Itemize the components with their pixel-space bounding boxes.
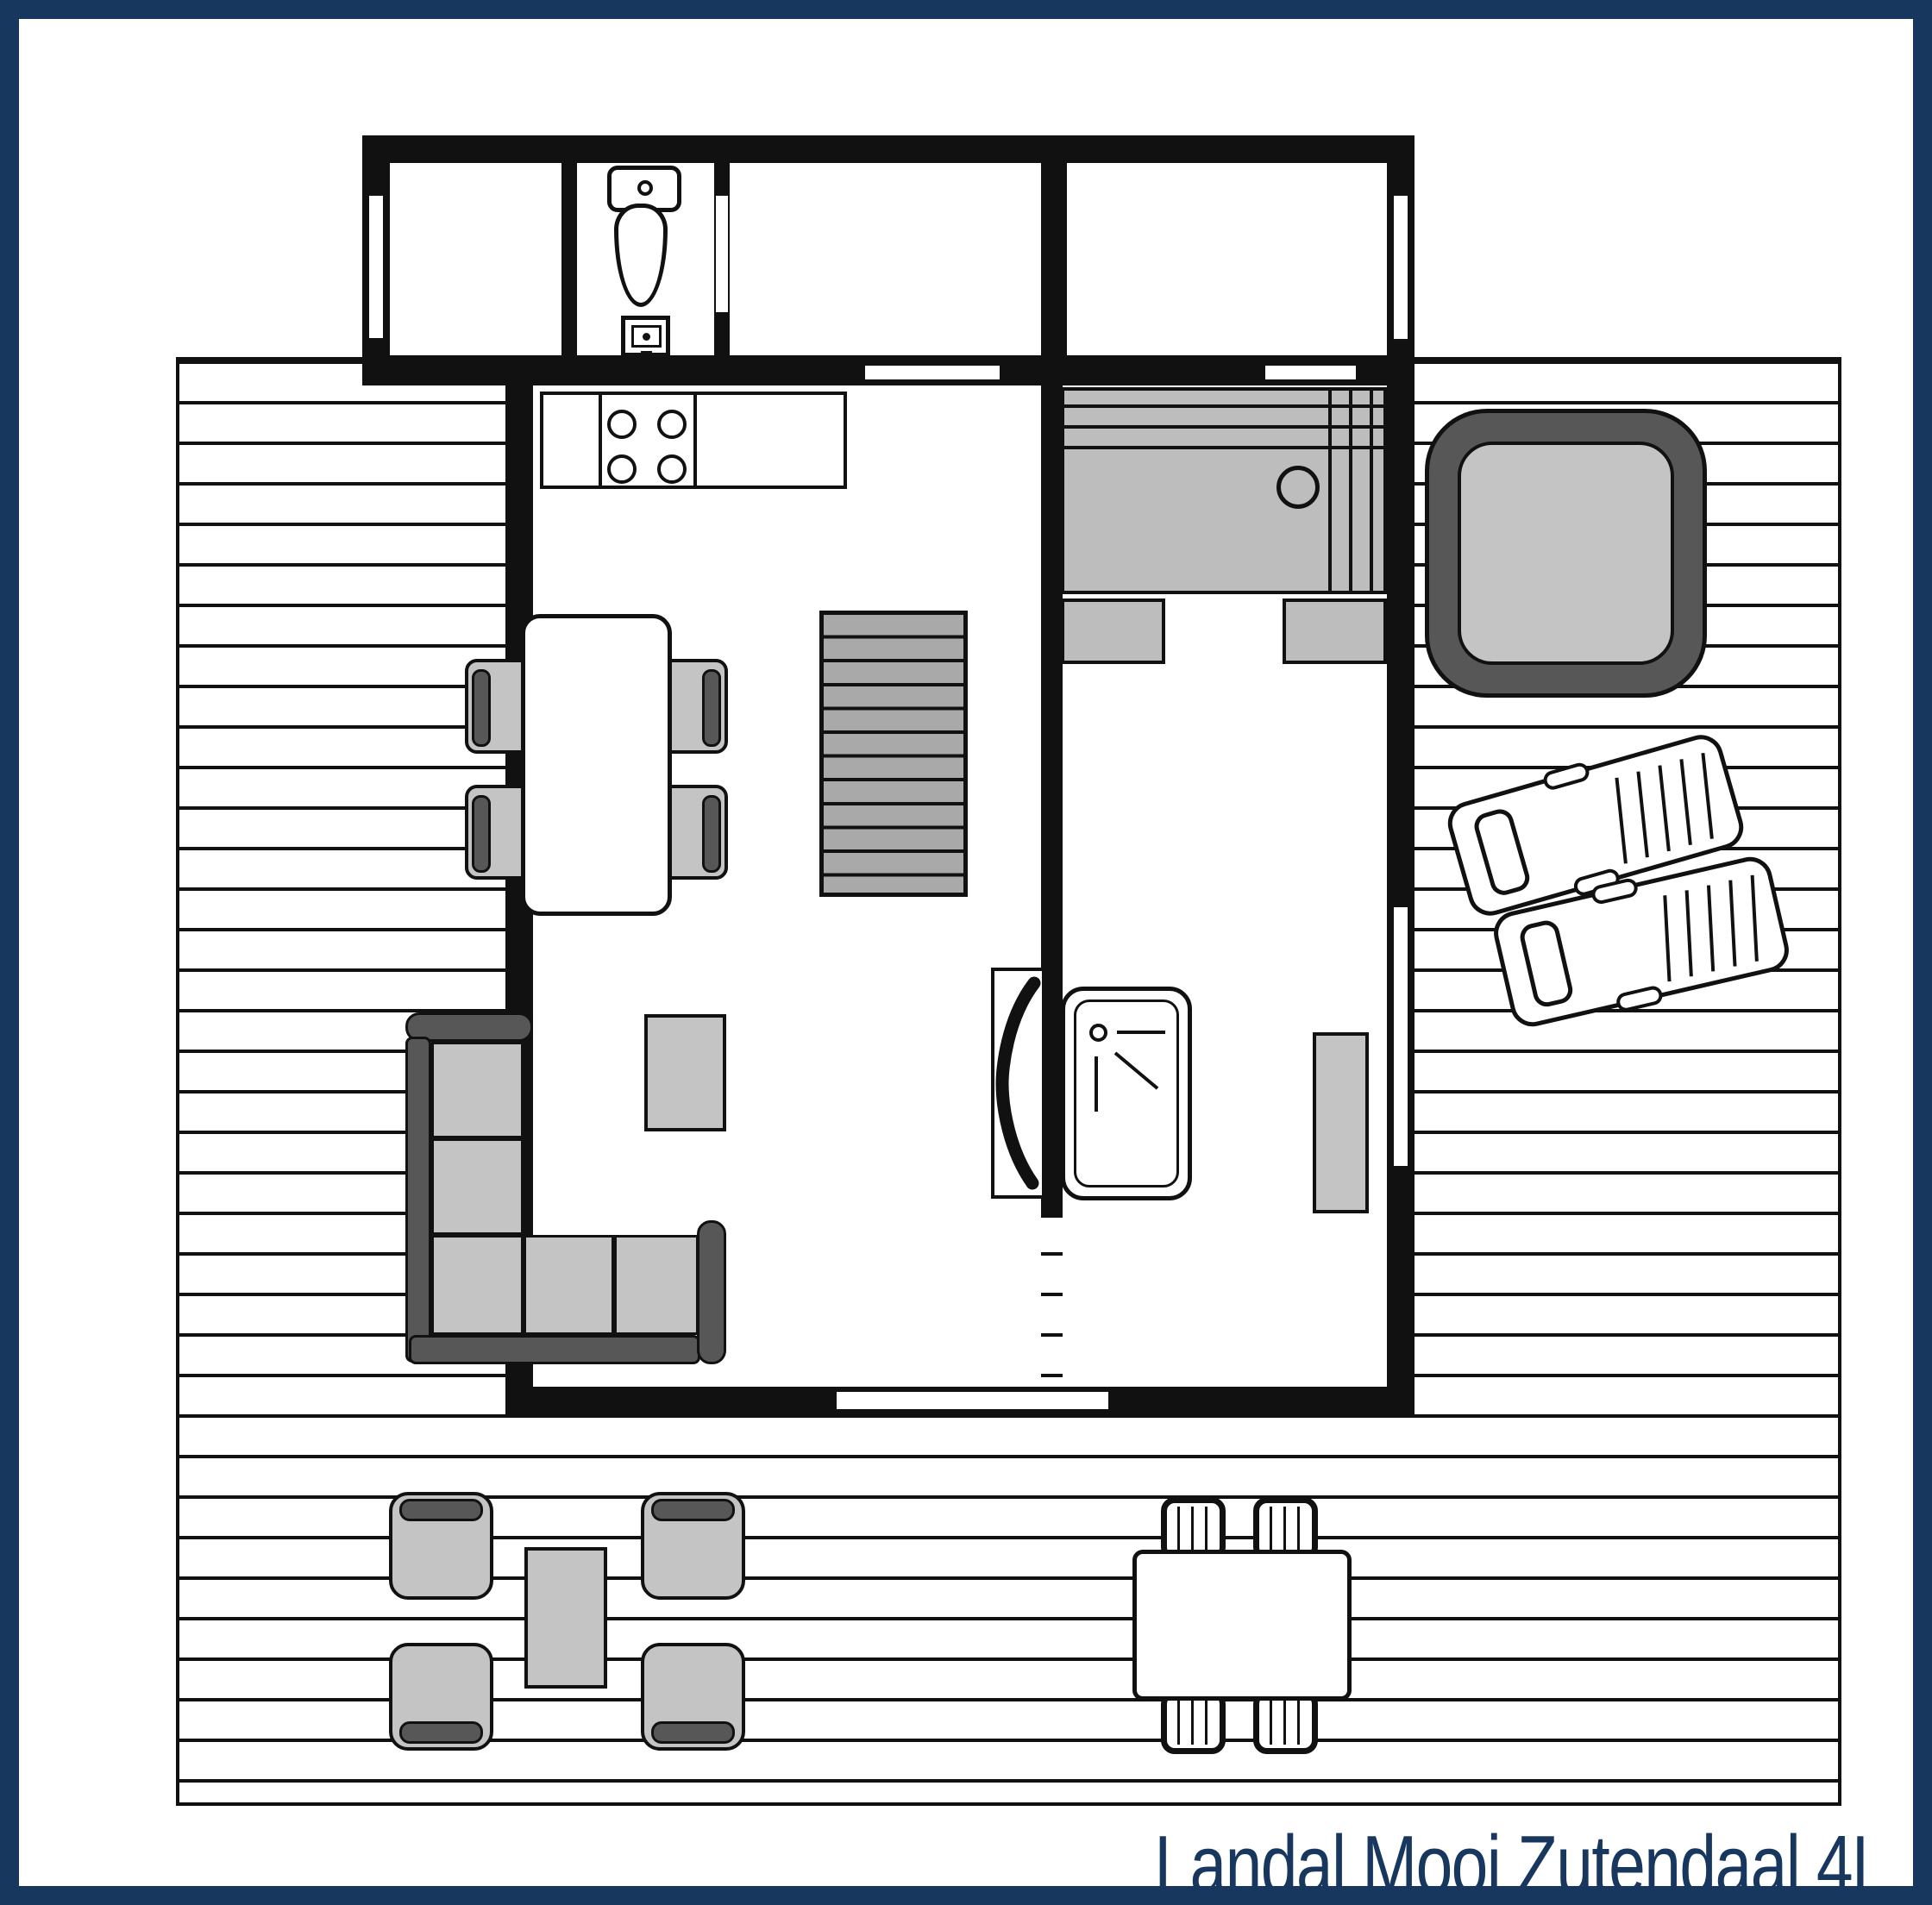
hot-tub (1425, 409, 1707, 698)
dining-table (521, 614, 672, 916)
sofa-armrest-right (697, 1220, 726, 1364)
chair-slat (1177, 1700, 1180, 1745)
shower-hose-icon (1095, 1056, 1098, 1112)
chair-slat (1205, 1700, 1207, 1745)
hot-tub-water (1458, 442, 1674, 665)
basin-drain-icon (643, 333, 650, 341)
wash-basin (621, 316, 670, 357)
chair-slat (1205, 1507, 1207, 1551)
lounger-slat (1615, 778, 1627, 864)
outdoor-chair (389, 1643, 493, 1751)
lounger-headrest (1517, 918, 1575, 1010)
bedroom-middle (730, 163, 1041, 355)
chair-backrest (472, 669, 491, 747)
bedroom-left (390, 163, 561, 355)
basin-tap-icon (641, 351, 652, 361)
sofa-cushion (614, 1235, 699, 1335)
sliding-door-bottom (837, 1392, 1108, 1409)
toilet-flush-button-icon (637, 180, 653, 196)
counter-divider (693, 395, 697, 486)
chair-slat (1297, 1507, 1300, 1551)
chair-backrest (702, 669, 721, 747)
sauna-bench-slat (1064, 425, 1383, 429)
chair-slat (1283, 1507, 1286, 1551)
window-left-wall (369, 196, 383, 338)
chair-backrest (702, 795, 721, 873)
window-right-top (1394, 196, 1408, 339)
counter-divider (599, 395, 602, 486)
chair-slat (1191, 1507, 1194, 1551)
outdoor-chair (641, 1492, 745, 1600)
sofa-cushion-corner (431, 1235, 524, 1335)
chair-backrest (472, 795, 491, 873)
sauna-heater-icon (1276, 466, 1320, 509)
door-swing-arc-icon (991, 968, 1045, 1199)
stove-burner-icon (657, 454, 687, 484)
lounger-slat (1658, 765, 1670, 851)
sauna-bench-slat (1064, 446, 1383, 449)
sauna-step-bench-left (1061, 598, 1165, 664)
sauna-bench-slat-vertical (1349, 391, 1352, 591)
outdoor-chair (641, 1643, 745, 1751)
chair-backrest (651, 1499, 735, 1521)
stove-burner-icon (657, 410, 687, 439)
bathroom-bench (1313, 1032, 1369, 1213)
chair-slat (1270, 1507, 1272, 1551)
lounger-slat (1636, 772, 1648, 858)
stove-burner-icon (607, 454, 637, 484)
coffee-table (644, 1014, 726, 1131)
sauna-step-bench-right (1283, 598, 1387, 664)
sauna-bench-slat-vertical (1328, 391, 1332, 591)
lounger-slat (1728, 880, 1736, 967)
lounger-slat (1679, 759, 1691, 845)
lounger-slat (1685, 890, 1693, 976)
sofa-cushion (431, 1042, 524, 1138)
chair-slat (1297, 1700, 1300, 1745)
floor-plan-canvas: Landal Mooi Zutendaal 4L (0, 0, 1932, 1905)
chair-backrest (651, 1721, 735, 1744)
window-right-bathroom (1394, 907, 1408, 1166)
lounger-slat (1707, 885, 1715, 971)
sauna-bench-slat (1064, 404, 1383, 408)
chair-slat (1177, 1507, 1180, 1551)
chair-slat (1270, 1700, 1272, 1745)
staircase (819, 611, 968, 897)
sofa-cushion (431, 1138, 524, 1235)
kitchen-counter (540, 392, 847, 489)
sofa-back-bottom (409, 1335, 700, 1364)
stove-burner-icon (607, 410, 637, 439)
chair-backrest (399, 1499, 483, 1521)
chair-backrest (399, 1721, 483, 1744)
sofa-back-left (405, 1037, 431, 1363)
shower-head-icon (1089, 1024, 1107, 1042)
lounger-slat (1751, 875, 1759, 962)
plan-title: Landal Mooi Zutendaal 4L (1154, 1818, 1887, 1905)
lounger-slat (1663, 895, 1671, 981)
door-bedroom-middle (865, 366, 1000, 379)
outdoor-chair (389, 1492, 493, 1600)
sofa-cushion (524, 1235, 614, 1335)
chair-slat (1191, 1700, 1194, 1745)
lounger-slat (1701, 753, 1713, 839)
shower-arm-icon (1117, 1031, 1165, 1034)
bedroom-right (1067, 163, 1387, 355)
patio-dining-table (1132, 1550, 1352, 1701)
door-toilet-room (716, 196, 728, 312)
shower-tray (1061, 987, 1192, 1200)
door-bedroom-right (1265, 366, 1356, 379)
chair-slat (1283, 1700, 1286, 1745)
outdoor-side-table (524, 1547, 607, 1689)
sauna-bench-slat-vertical (1370, 391, 1373, 591)
sauna-bench-area (1061, 387, 1387, 594)
lounger-headrest (1471, 806, 1533, 899)
